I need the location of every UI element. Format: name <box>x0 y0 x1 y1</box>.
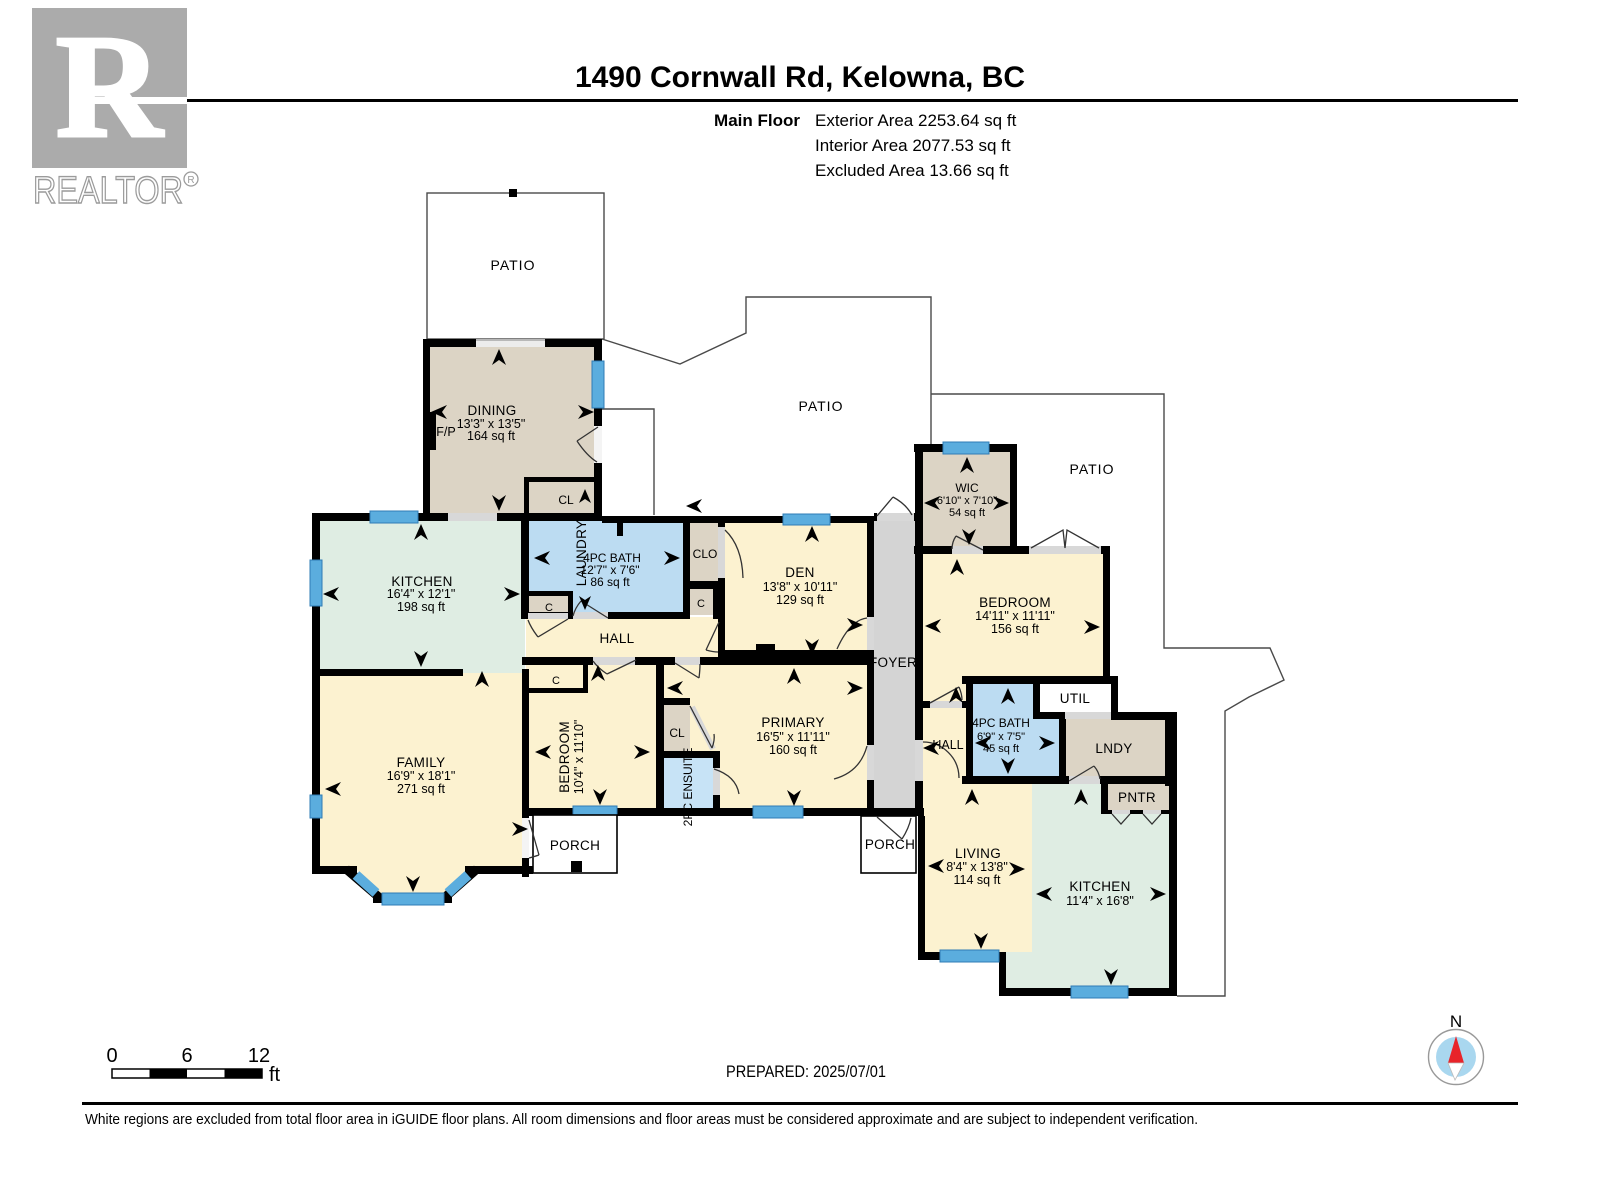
svg-text:Exterior Area 2253.64 sq ft: Exterior Area 2253.64 sq ft <box>815 111 1017 130</box>
svg-text:ft: ft <box>269 1064 281 1086</box>
svg-text:LIVING: LIVING <box>955 846 1001 861</box>
svg-text:198 sq ft: 198 sq ft <box>397 600 445 614</box>
svg-text:6: 6 <box>181 1045 192 1067</box>
svg-text:HALL: HALL <box>932 738 963 752</box>
svg-text:DINING: DINING <box>467 403 516 418</box>
svg-text:PRIMARY: PRIMARY <box>761 715 824 730</box>
svg-text:16'5" x 11'11": 16'5" x 11'11" <box>756 730 830 744</box>
svg-text:LNDY: LNDY <box>1095 741 1132 756</box>
svg-text:8'4" x 13'8": 8'4" x 13'8" <box>946 860 1008 874</box>
svg-text:45 sq ft: 45 sq ft <box>983 743 1019 755</box>
svg-text:6'9" x 7'5": 6'9" x 7'5" <box>977 731 1025 743</box>
svg-text:C: C <box>697 598 705 610</box>
svg-text:164 sq ft: 164 sq ft <box>467 429 515 443</box>
svg-text:PATIO: PATIO <box>491 257 536 273</box>
svg-text:CLO: CLO <box>693 547 718 561</box>
svg-text:Excluded Area 13.66 sq ft: Excluded Area 13.66 sq ft <box>815 161 1009 180</box>
svg-text:Interior Area 2077.53 sq ft: Interior Area 2077.53 sq ft <box>815 136 1011 155</box>
svg-text:16'9" x 18'1": 16'9" x 18'1" <box>387 769 456 783</box>
svg-text:PORCH: PORCH <box>550 838 600 853</box>
svg-text:UTIL: UTIL <box>1060 691 1091 706</box>
svg-text:PREPARED: 2025/07/01: PREPARED: 2025/07/01 <box>726 1063 886 1081</box>
svg-text:R: R <box>187 175 194 186</box>
svg-text:KITCHEN: KITCHEN <box>1069 879 1130 894</box>
svg-text:N: N <box>1450 1012 1462 1031</box>
svg-text:11'4" x 16'8": 11'4" x 16'8" <box>1066 894 1134 908</box>
svg-text:4PC BATH: 4PC BATH <box>972 716 1030 730</box>
svg-text:BEDROOM: BEDROOM <box>557 721 572 793</box>
svg-text:Main Floor: Main Floor <box>714 111 800 130</box>
svg-text:REALTOR: REALTOR <box>33 170 183 212</box>
svg-text:PORCH: PORCH <box>865 837 915 852</box>
svg-text:DEN: DEN <box>785 565 814 580</box>
svg-text:271 sq ft: 271 sq ft <box>397 782 445 796</box>
svg-text:0: 0 <box>106 1045 117 1067</box>
svg-text:C: C <box>552 675 560 687</box>
svg-text:160 sq ft: 160 sq ft <box>769 743 817 757</box>
svg-text:HALL: HALL <box>600 631 635 646</box>
svg-text:WIC: WIC <box>955 481 979 495</box>
svg-text:PATIO: PATIO <box>1070 461 1115 477</box>
svg-text:PNTR: PNTR <box>1118 790 1156 805</box>
svg-text:14'11" x 11'11": 14'11" x 11'11" <box>975 609 1055 623</box>
svg-text:54 sq ft: 54 sq ft <box>949 507 985 519</box>
svg-text:CL: CL <box>558 493 574 507</box>
svg-text:White regions are excluded fro: White regions are excluded from total fl… <box>85 1112 1198 1128</box>
svg-text:C: C <box>545 602 553 614</box>
svg-text:86 sq ft: 86 sq ft <box>590 575 630 589</box>
svg-text:2PC ENSUITE: 2PC ENSUITE <box>681 748 695 827</box>
svg-text:156 sq ft: 156 sq ft <box>991 622 1039 636</box>
svg-text:12: 12 <box>248 1045 270 1067</box>
svg-text:BEDROOM: BEDROOM <box>979 595 1051 610</box>
svg-text:CL: CL <box>669 726 685 740</box>
svg-text:FOYER: FOYER <box>869 655 917 670</box>
svg-text:16'4" x 12'1": 16'4" x 12'1" <box>387 587 456 601</box>
svg-text:F/P: F/P <box>436 425 455 439</box>
svg-text:6'10" x 7'10": 6'10" x 7'10" <box>937 495 997 507</box>
svg-text:13'8" x 10'11": 13'8" x 10'11" <box>763 580 838 594</box>
svg-text:10'4" x 11'10": 10'4" x 11'10" <box>572 720 586 795</box>
svg-text:1490 Cornwall Rd, Kelowna, BC: 1490 Cornwall Rd, Kelowna, BC <box>575 61 1025 94</box>
svg-text:R: R <box>56 5 165 169</box>
svg-text:PATIO: PATIO <box>799 398 844 414</box>
svg-text:FAMILY: FAMILY <box>397 755 446 770</box>
svg-text:114 sq ft: 114 sq ft <box>953 873 1001 887</box>
svg-text:129 sq ft: 129 sq ft <box>776 593 824 607</box>
